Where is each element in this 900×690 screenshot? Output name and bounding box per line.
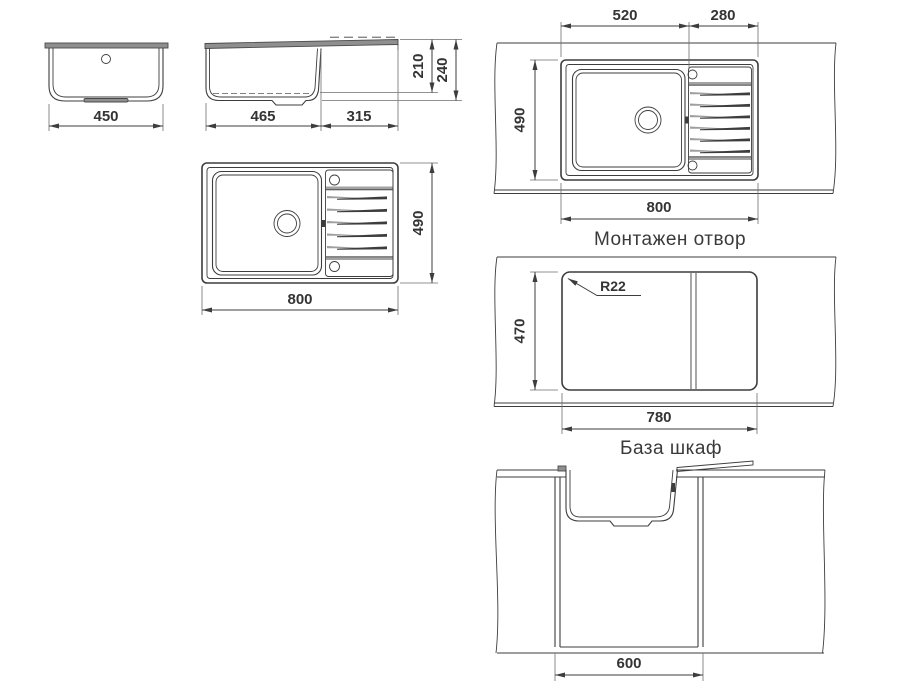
front-bowl-outer: [49, 48, 163, 101]
dim-top-bowl-width: 520: [612, 7, 637, 24]
cabinet-break-right: [823, 470, 826, 653]
dim-top-width: 800: [646, 199, 671, 216]
front-view: 450: [45, 43, 168, 131]
tap-hole-top-icon: [330, 175, 340, 185]
dim-cutout-radius: R22: [600, 278, 626, 294]
dim-front-width: 450: [93, 108, 118, 125]
cabinet-overflow-slot: [672, 483, 676, 492]
worktop-front-edge: [494, 190, 833, 194]
plan-bowl-inner: [216, 175, 318, 272]
dim-plan-width: 800: [287, 291, 312, 308]
plan-bowl-outer: [213, 172, 322, 276]
dim-side-overall-depth: 240: [434, 57, 451, 82]
cabinet-break-left: [495, 470, 498, 653]
side-rim: [205, 40, 398, 49]
caption-base-cabinet: База шкаф: [620, 438, 722, 459]
dim-cutout-width: 780: [646, 409, 671, 426]
plan-view: 800 490: [202, 163, 438, 315]
cabinet-bowl-outer: [566, 470, 678, 526]
plan-grooves: [327, 196, 387, 250]
cutout-break-right: [833, 257, 836, 407]
drain-inner-icon: [278, 214, 297, 233]
front-rim: [45, 43, 168, 48]
dim-top-drainer-width: 280: [710, 7, 735, 24]
mounted-tap-hole-bottom-icon: [688, 161, 697, 170]
dim-side-drainer-width: 315: [346, 108, 371, 125]
plan-overflow-slot: [322, 220, 326, 227]
dim-cabinet-width: 600: [616, 655, 641, 672]
mounted-bowl-outer: [573, 70, 686, 171]
cutout-worktop-front-edge: [494, 403, 833, 407]
dim-side-bowl-depth: 210: [410, 53, 427, 78]
mounted-overflow-slot: [685, 117, 689, 124]
worktop-break-left: [494, 43, 497, 194]
front-drain-boss: [84, 99, 128, 103]
cabinet-view: 600: [495, 461, 825, 681]
cutout-break-left: [494, 257, 497, 407]
dim-plan-depth: 490: [410, 210, 427, 235]
side-bowl-outer: [206, 49, 321, 106]
mounting-view: 520 280 490 800 Монтажен отвор: [494, 7, 836, 250]
tap-hole-bottom-icon: [330, 262, 340, 272]
technical-drawing: 450 465 315 210 240: [0, 0, 900, 690]
cabinet-rim-left: [558, 466, 566, 471]
mounted-sink-outline: [561, 60, 758, 180]
cutout-view: R22 470 780 База шкаф: [494, 257, 836, 459]
mounted-tap-hole-top-icon: [688, 70, 697, 79]
cutout-outline: [562, 272, 757, 390]
cutout-divider-lines: [691, 273, 696, 389]
front-bowl-inner: [53, 48, 159, 97]
mounted-drain-inner-icon: [639, 111, 658, 130]
side-view: 465 315 210 240: [205, 37, 462, 131]
overflow-hole-icon: [102, 55, 111, 64]
mounted-bowl-inner: [576, 73, 682, 167]
side-bowl-inner: [210, 49, 318, 98]
dim-top-depth: 490: [512, 107, 529, 132]
dim-cutout-depth: 470: [512, 318, 529, 343]
mounted-grooves: [690, 92, 750, 153]
cabinet-side-walls: [555, 477, 703, 647]
dim-side-bowl-width: 465: [250, 108, 275, 125]
caption-mounting-hole: Монтажен отвор: [594, 229, 746, 250]
cabinet-bowl-inner: [570, 470, 673, 517]
sink-drawing-svg: 450 465 315 210 240: [0, 0, 900, 690]
worktop-break-right: [833, 43, 836, 194]
